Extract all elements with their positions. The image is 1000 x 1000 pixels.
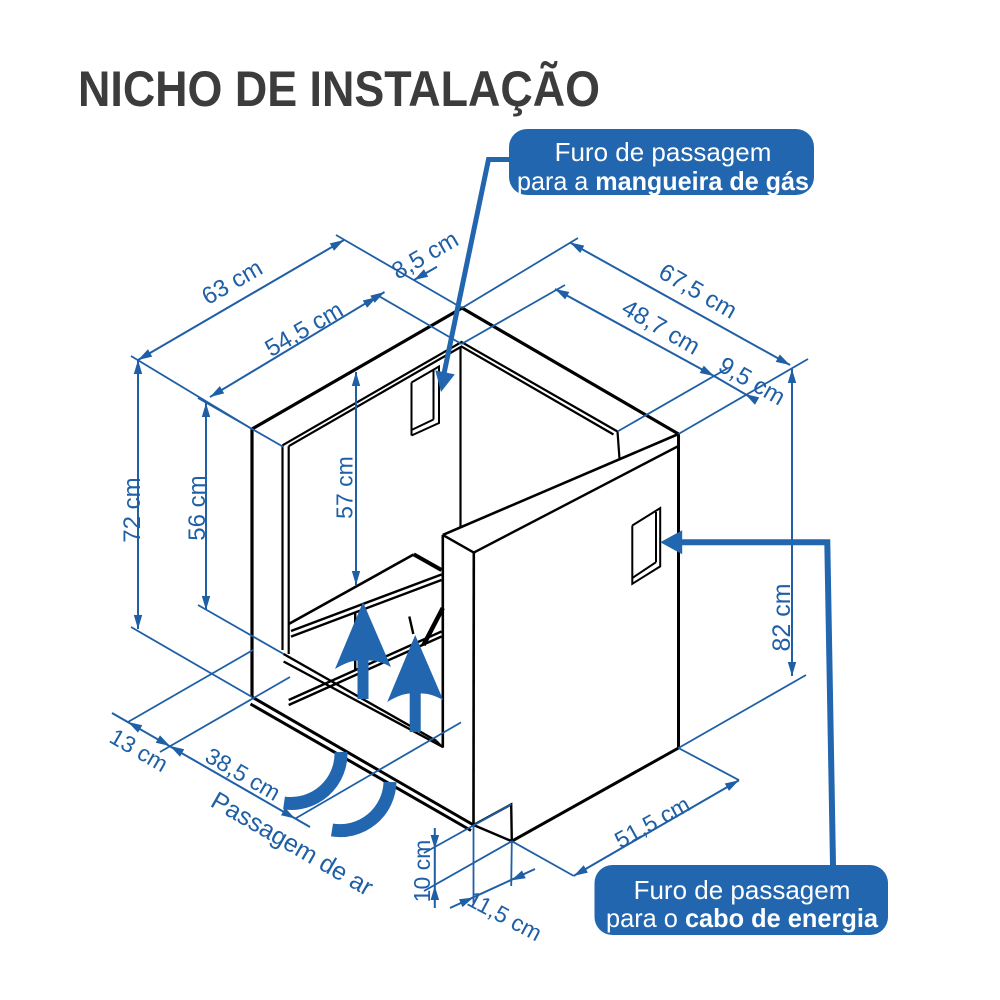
svg-text:72 cm: 72 cm [119, 477, 146, 542]
svg-text:10 cm: 10 cm [409, 840, 435, 903]
svg-text:56 cm: 56 cm [184, 475, 211, 540]
svg-text:82 cm: 82 cm [768, 583, 796, 651]
svg-text:para o cabo de energia: para o cabo de energia [606, 903, 879, 933]
svg-text:Furo de passagem: Furo de passagem [634, 875, 851, 905]
svg-text:57 cm: 57 cm [332, 456, 358, 519]
svg-text:NICHO DE INSTALAÇÃO: NICHO DE INSTALAÇÃO [78, 61, 600, 117]
svg-text:Furo de passagem: Furo de passagem [555, 137, 772, 167]
svg-text:para a mangueira de gás: para a mangueira de gás [517, 166, 809, 196]
